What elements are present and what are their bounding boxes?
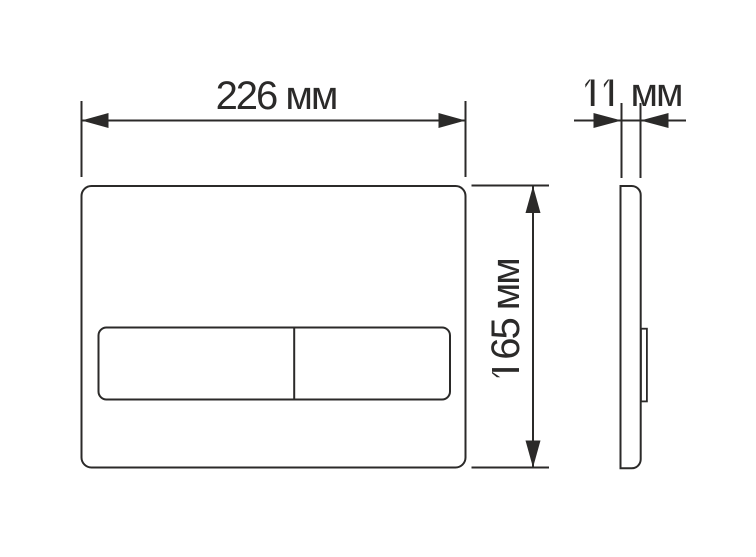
svg-text:мм: мм xyxy=(631,71,682,115)
svg-text:65 мм: 65 мм xyxy=(484,259,528,360)
svg-text:226 мм: 226 мм xyxy=(216,74,337,118)
